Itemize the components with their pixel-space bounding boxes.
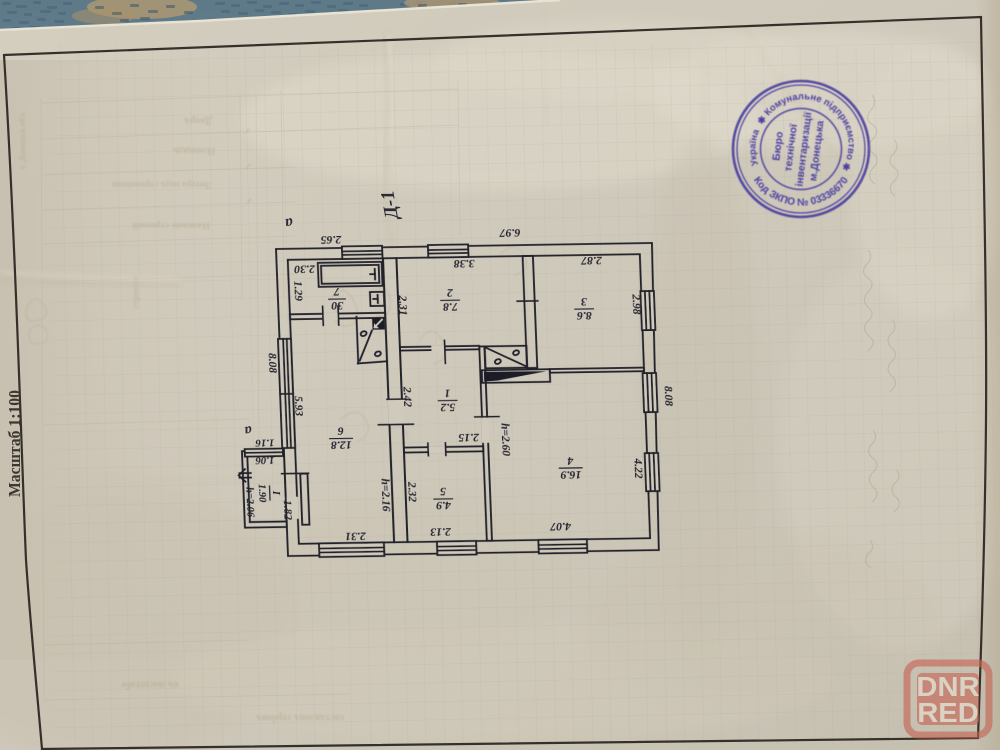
- svg-text:8.6: 8.6: [577, 309, 592, 322]
- svg-text:16.9: 16.9: [560, 468, 581, 481]
- svg-text:1.06: 1.06: [255, 454, 275, 465]
- svg-text:6.97: 6.97: [498, 226, 520, 239]
- svg-text:h=2.16: h=2.16: [378, 478, 392, 511]
- svg-text:Литера подъ строеніями: Литера подъ строеніями: [112, 180, 211, 190]
- svg-text:5.2: 5.2: [440, 400, 455, 413]
- svg-text:1.82: 1.82: [281, 500, 295, 520]
- svg-text:составленъ гербовъ: составленъ гербовъ: [256, 712, 345, 723]
- svg-text:2: 2: [446, 286, 454, 299]
- svg-text:12.8: 12.8: [331, 438, 352, 451]
- svg-text:Дворъ: Дворъ: [184, 115, 213, 126]
- svg-text:✓: ✓: [245, 196, 253, 206]
- svg-text:✓: ✓: [244, 161, 252, 171]
- svg-text:3.38: 3.38: [453, 257, 475, 270]
- svg-text:2.31: 2.31: [345, 529, 367, 542]
- svg-text:2.31: 2.31: [396, 294, 410, 315]
- svg-text:Площадь: Площадь: [172, 145, 215, 156]
- svg-text:Масштаб 1:100: Масштаб 1:100: [5, 390, 24, 497]
- svg-text:1.16: 1.16: [255, 436, 275, 447]
- svg-text:4.07: 4.07: [549, 520, 572, 533]
- svg-text:2.65: 2.65: [320, 233, 342, 246]
- svg-text:г. Донецкъ обл.: г. Донецкъ обл.: [17, 111, 27, 169]
- svg-text:въ масштабе: въ масштабе: [121, 679, 179, 690]
- svg-text:h=2.06: h=2.06: [243, 487, 255, 518]
- svg-text:RED: RED: [917, 698, 979, 729]
- svg-text:2.30: 2.30: [294, 262, 316, 275]
- svg-text:h=2.60: h=2.60: [498, 423, 512, 456]
- svg-text:1.29: 1.29: [291, 281, 305, 301]
- svg-text:1.90: 1.90: [256, 484, 268, 503]
- svg-text:2.98: 2.98: [629, 293, 643, 314]
- svg-text:6: 6: [337, 424, 344, 437]
- svg-text:2.13: 2.13: [430, 525, 452, 538]
- svg-text:4: 4: [567, 454, 575, 467]
- svg-text:8.08: 8.08: [265, 353, 279, 373]
- svg-text:4.9: 4.9: [436, 499, 452, 512]
- svg-text:1: 1: [444, 387, 450, 400]
- svg-text:2.15: 2.15: [458, 431, 480, 444]
- svg-text:5: 5: [440, 485, 447, 498]
- svg-text:2.42: 2.42: [401, 386, 415, 407]
- svg-text:5.93: 5.93: [292, 396, 306, 416]
- svg-text:2.32: 2.32: [405, 481, 419, 502]
- svg-text:30: 30: [331, 299, 345, 312]
- svg-text:3: 3: [580, 295, 588, 308]
- svg-text:4.22: 4.22: [631, 457, 645, 478]
- svg-text:7.8: 7.8: [443, 300, 458, 313]
- svg-text:Названіе строеній: Названіе строеній: [132, 220, 210, 231]
- svg-text:8.08: 8.08: [662, 386, 676, 406]
- svg-text:✓: ✓: [243, 126, 251, 136]
- svg-text:2.87: 2.87: [580, 254, 603, 267]
